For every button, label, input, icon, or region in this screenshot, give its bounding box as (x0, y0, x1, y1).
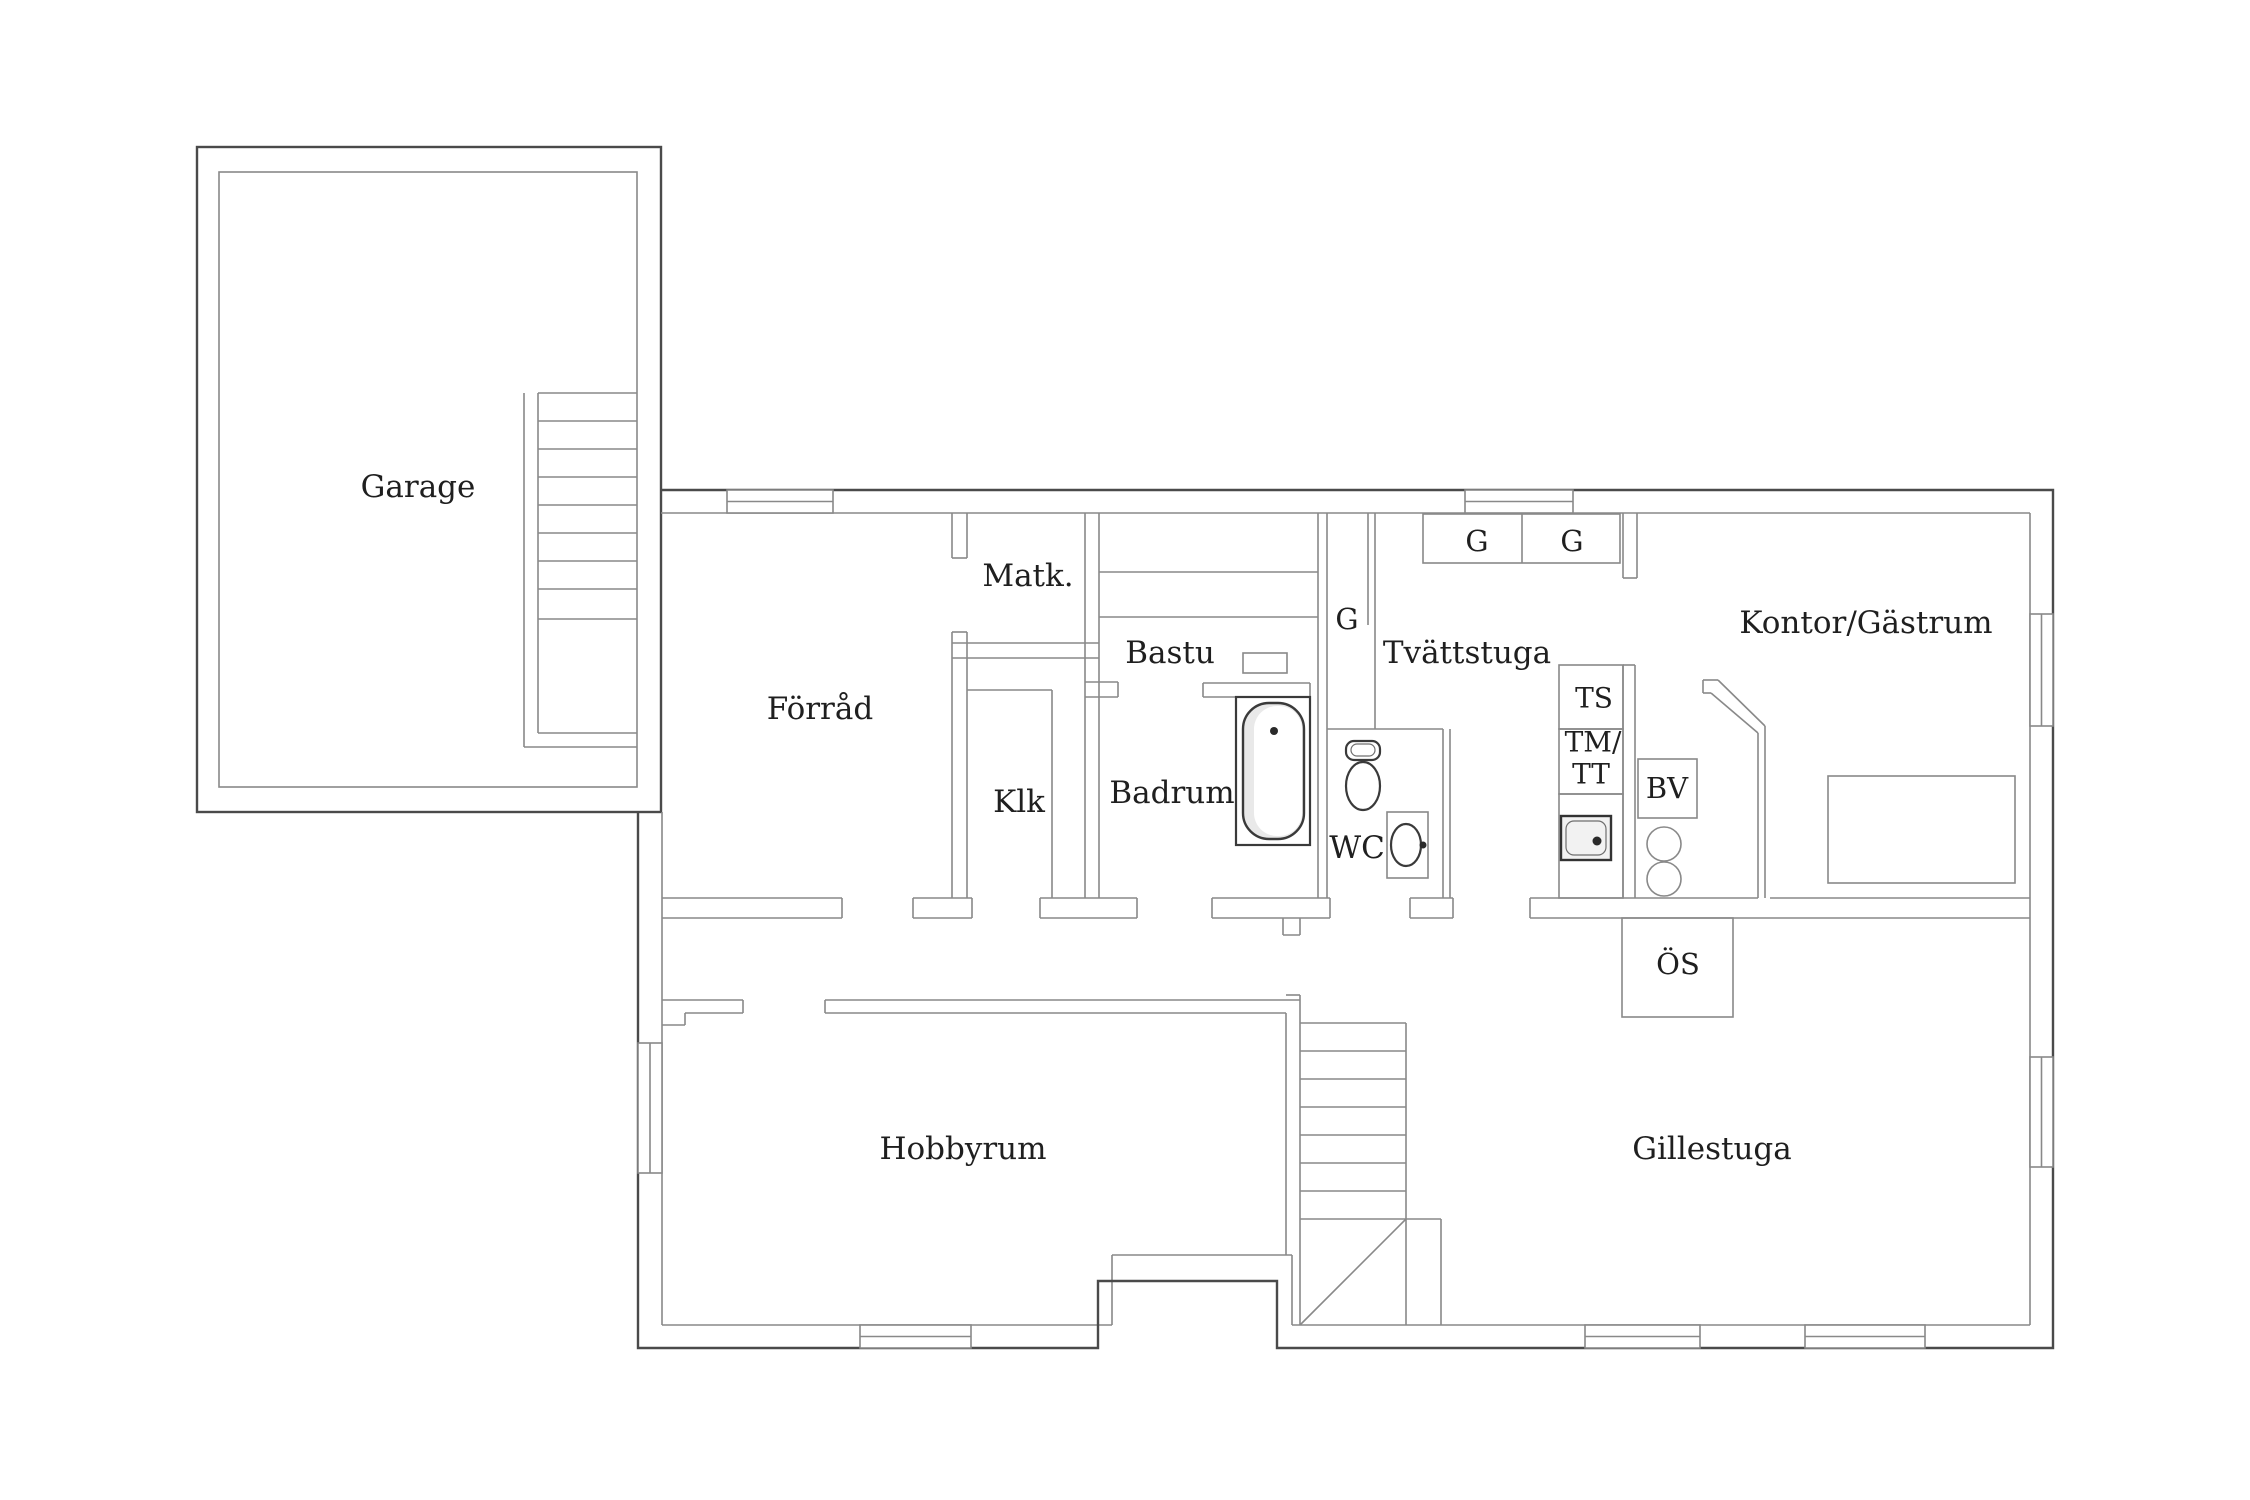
bathtub-floor (1254, 706, 1302, 836)
floor-plan: GarageFörrådMatk.BastuKlkBadrumWCGTvätts… (0, 0, 2250, 1500)
room-label-g_closet: G (1335, 602, 1358, 636)
toilet-bowl (1346, 762, 1380, 810)
sauna-heater (1243, 653, 1287, 673)
room-label-tm2: TT (1572, 758, 1610, 791)
room-label-tvattstuga: Tvättstuga (1383, 635, 1551, 671)
room-label-badrum: Badrum (1109, 775, 1234, 811)
room-label-g2: G (1560, 524, 1583, 558)
room-label-matk: Matk. (982, 558, 1073, 594)
room-label-bv: BV (1646, 771, 1689, 805)
hotplate (1647, 827, 1681, 861)
room-label-kontor: Kontor/Gästrum (1739, 605, 1992, 641)
room-label-os: ÖS (1656, 946, 1700, 981)
hotplate (1647, 862, 1681, 896)
room-label-bastu: Bastu (1125, 635, 1215, 671)
floor-plan-page: GarageFörrådMatk.BastuKlkBadrumWCGTvätts… (0, 0, 2250, 1500)
room-label-klk: Klk (993, 784, 1045, 820)
bathtub-drain (1270, 727, 1278, 735)
room-label-hobbyrum: Hobbyrum (879, 1131, 1046, 1167)
room-label-wc: WC (1329, 830, 1385, 866)
room-label-gillestuga: Gillestuga (1632, 1131, 1792, 1167)
stairs-winder-diagonal (1300, 1219, 1406, 1325)
room-label-ts: TS (1575, 682, 1613, 715)
room-label-forrad: Förråd (767, 691, 873, 727)
washbasin-faucet (1420, 842, 1427, 849)
room-label-g1: G (1465, 524, 1488, 558)
washbasin (1391, 824, 1421, 866)
desk (1828, 776, 2015, 883)
laundry-sink-faucet (1593, 837, 1602, 846)
room-label-tm1: TM/ (1565, 726, 1622, 759)
room-label-garage: Garage (361, 469, 476, 505)
